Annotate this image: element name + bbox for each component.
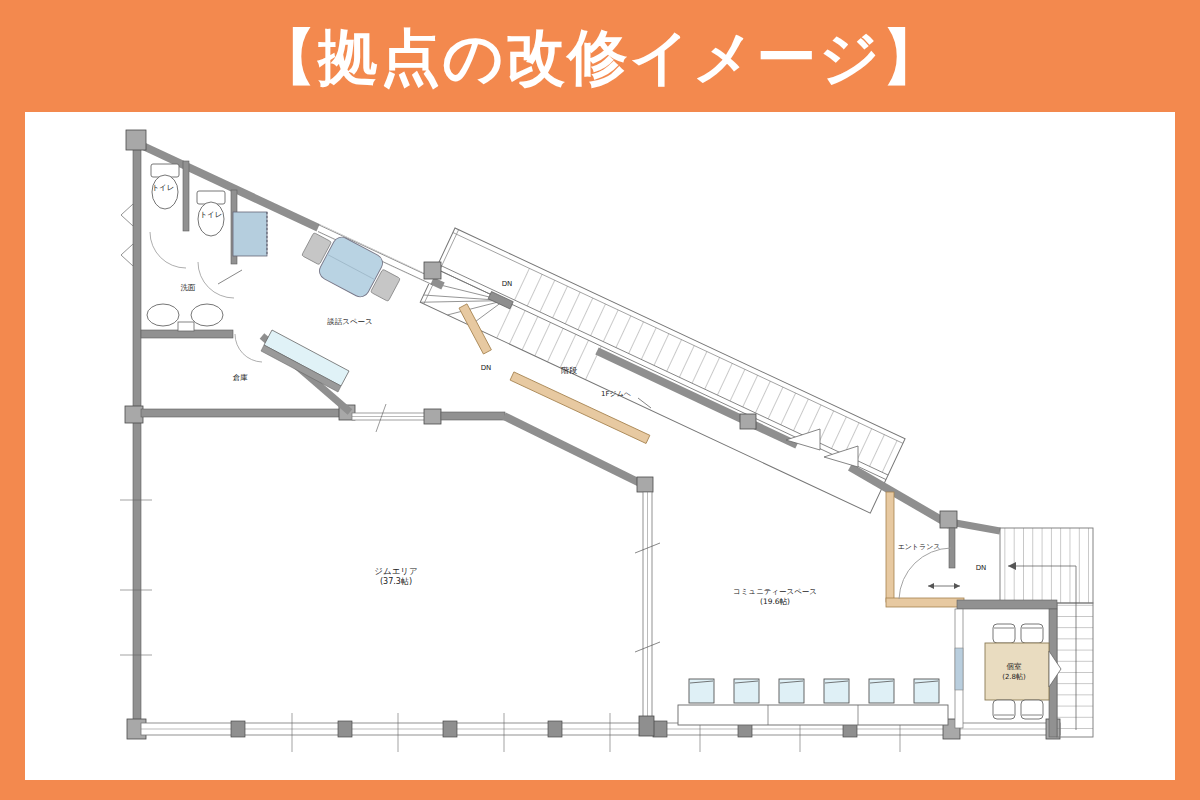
door-arc [198, 262, 234, 298]
counter-chairs [689, 679, 939, 703]
chair [1021, 700, 1043, 719]
cabinet [233, 212, 267, 256]
door-arc [150, 232, 186, 268]
label-stairs: 階段 [561, 366, 577, 375]
window-symbol [121, 204, 133, 226]
label-washroom: 洗面 [181, 283, 197, 292]
window-symbol [121, 244, 133, 266]
chair [1021, 624, 1043, 643]
label-private-room: 個室 [1007, 662, 1023, 671]
sink-icon [191, 304, 223, 326]
floor-plan-drawing: トイレ トイレ 洗面 倉庫 談話スペース 階段 DN DN 1Fジムへ ジムエリ… [0, 0, 1200, 800]
door-arc [235, 334, 262, 362]
community-counter [678, 679, 948, 725]
label-gym: ジムエリア [374, 566, 418, 576]
label-entrance: エントランス [898, 543, 941, 551]
label-community: コミュニティースペース [733, 587, 817, 596]
left-wall [120, 130, 152, 739]
gym-north-wall [141, 404, 653, 492]
label-lounge: 談話スペース [327, 317, 373, 326]
label-dn-entrance: DN [976, 564, 987, 572]
entrance-door-arc [899, 548, 951, 599]
label-dn-upper: DN [502, 280, 513, 288]
storage-room [235, 330, 350, 412]
chair [993, 624, 1015, 643]
chair [993, 700, 1015, 719]
label-storage: 倉庫 [233, 373, 249, 382]
sink-icon [147, 304, 179, 326]
label-toilet-2: トイレ [199, 210, 222, 219]
label-dn-lower: DN [481, 364, 492, 372]
table [985, 643, 1049, 700]
gym-community-divider [635, 492, 660, 736]
label-gym-area: (37.3帖) [380, 577, 412, 586]
central-staircase [420, 228, 905, 513]
label-toilet-1: トイレ [151, 183, 174, 192]
label-private-room-area: (2.8帖) [1002, 673, 1026, 681]
label-to-gym: 1Fジムへ [601, 390, 631, 398]
label-community-area: (19.6帖) [760, 597, 790, 606]
